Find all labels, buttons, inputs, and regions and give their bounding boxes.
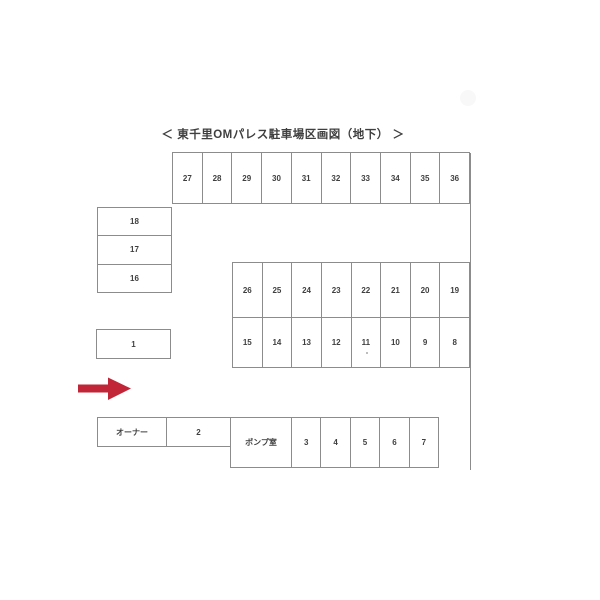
grid-space: 15 bbox=[233, 318, 262, 367]
grid-space: 24 bbox=[291, 263, 321, 317]
top-row-space: 31 bbox=[291, 153, 321, 203]
grid-space: 14 bbox=[262, 318, 292, 367]
grid-space: 23 bbox=[321, 263, 351, 317]
grid-space: 21 bbox=[380, 263, 410, 317]
scan-artifact-smudge bbox=[460, 90, 476, 106]
top-row-space: 30 bbox=[261, 153, 291, 203]
pump-row-cell: 5 bbox=[350, 418, 379, 467]
parking-map-scan: ＜ 東千里OMパレス駐車場区画図（地下） ＞ 27282930313233343… bbox=[0, 0, 600, 600]
left-column-space: 18 bbox=[98, 208, 171, 235]
middle-grid-upper-row: 2625242322212019 bbox=[233, 263, 469, 317]
pump-row-cell: ポンプ室 bbox=[231, 418, 291, 467]
owner-row: オーナー2 bbox=[97, 417, 231, 447]
pump-row-cell: 6 bbox=[379, 418, 408, 467]
top-row-space: 35 bbox=[410, 153, 440, 203]
top-row-space: 36 bbox=[439, 153, 469, 203]
grid-space: 22 bbox=[351, 263, 381, 317]
grid-space: 26 bbox=[233, 263, 262, 317]
grid-space: 13 bbox=[291, 318, 321, 367]
middle-grid-spaces: 2625242322212019 15141312111098 bbox=[232, 262, 470, 368]
parking-space-1: 1 bbox=[97, 330, 170, 358]
pump-row-cell: 7 bbox=[409, 418, 438, 467]
pump-row-cell: 4 bbox=[320, 418, 349, 467]
top-row-space: 33 bbox=[350, 153, 380, 203]
top-row-space: 29 bbox=[231, 153, 261, 203]
owner-row-cell: 2 bbox=[166, 418, 230, 446]
left-column-space: 17 bbox=[98, 235, 171, 263]
grid-space: 8 bbox=[439, 318, 469, 367]
grid-space: 20 bbox=[410, 263, 440, 317]
pump-room-row: ポンプ室34567 bbox=[230, 417, 439, 468]
grid-space: 25 bbox=[262, 263, 292, 317]
map-title: ＜ 東千里OMパレス駐車場区画図（地下） ＞ bbox=[0, 126, 566, 142]
top-row-space: 34 bbox=[380, 153, 410, 203]
grid-space: 10 bbox=[380, 318, 410, 367]
grid-space: 12 bbox=[321, 318, 351, 367]
scan-artifact-dot bbox=[366, 352, 368, 354]
grid-space: 9 bbox=[410, 318, 440, 367]
grid-space: 19 bbox=[439, 263, 469, 317]
top-row-space: 32 bbox=[321, 153, 351, 203]
owner-row-cell: オーナー bbox=[98, 418, 166, 446]
top-row-space: 28 bbox=[202, 153, 232, 203]
top-row-space: 27 bbox=[173, 153, 202, 203]
left-column-space: 16 bbox=[98, 264, 171, 292]
middle-grid-lower-row: 15141312111098 bbox=[233, 317, 469, 367]
red-arrow-icon bbox=[76, 375, 134, 403]
top-row-spaces: 27282930313233343536 bbox=[172, 152, 470, 204]
pump-row-cell: 3 bbox=[291, 418, 320, 467]
grid-space: 11 bbox=[351, 318, 381, 367]
left-column-spaces: 181716 bbox=[97, 207, 172, 293]
right-boundary-line bbox=[470, 153, 471, 470]
single-space-box: 1 bbox=[96, 329, 171, 359]
